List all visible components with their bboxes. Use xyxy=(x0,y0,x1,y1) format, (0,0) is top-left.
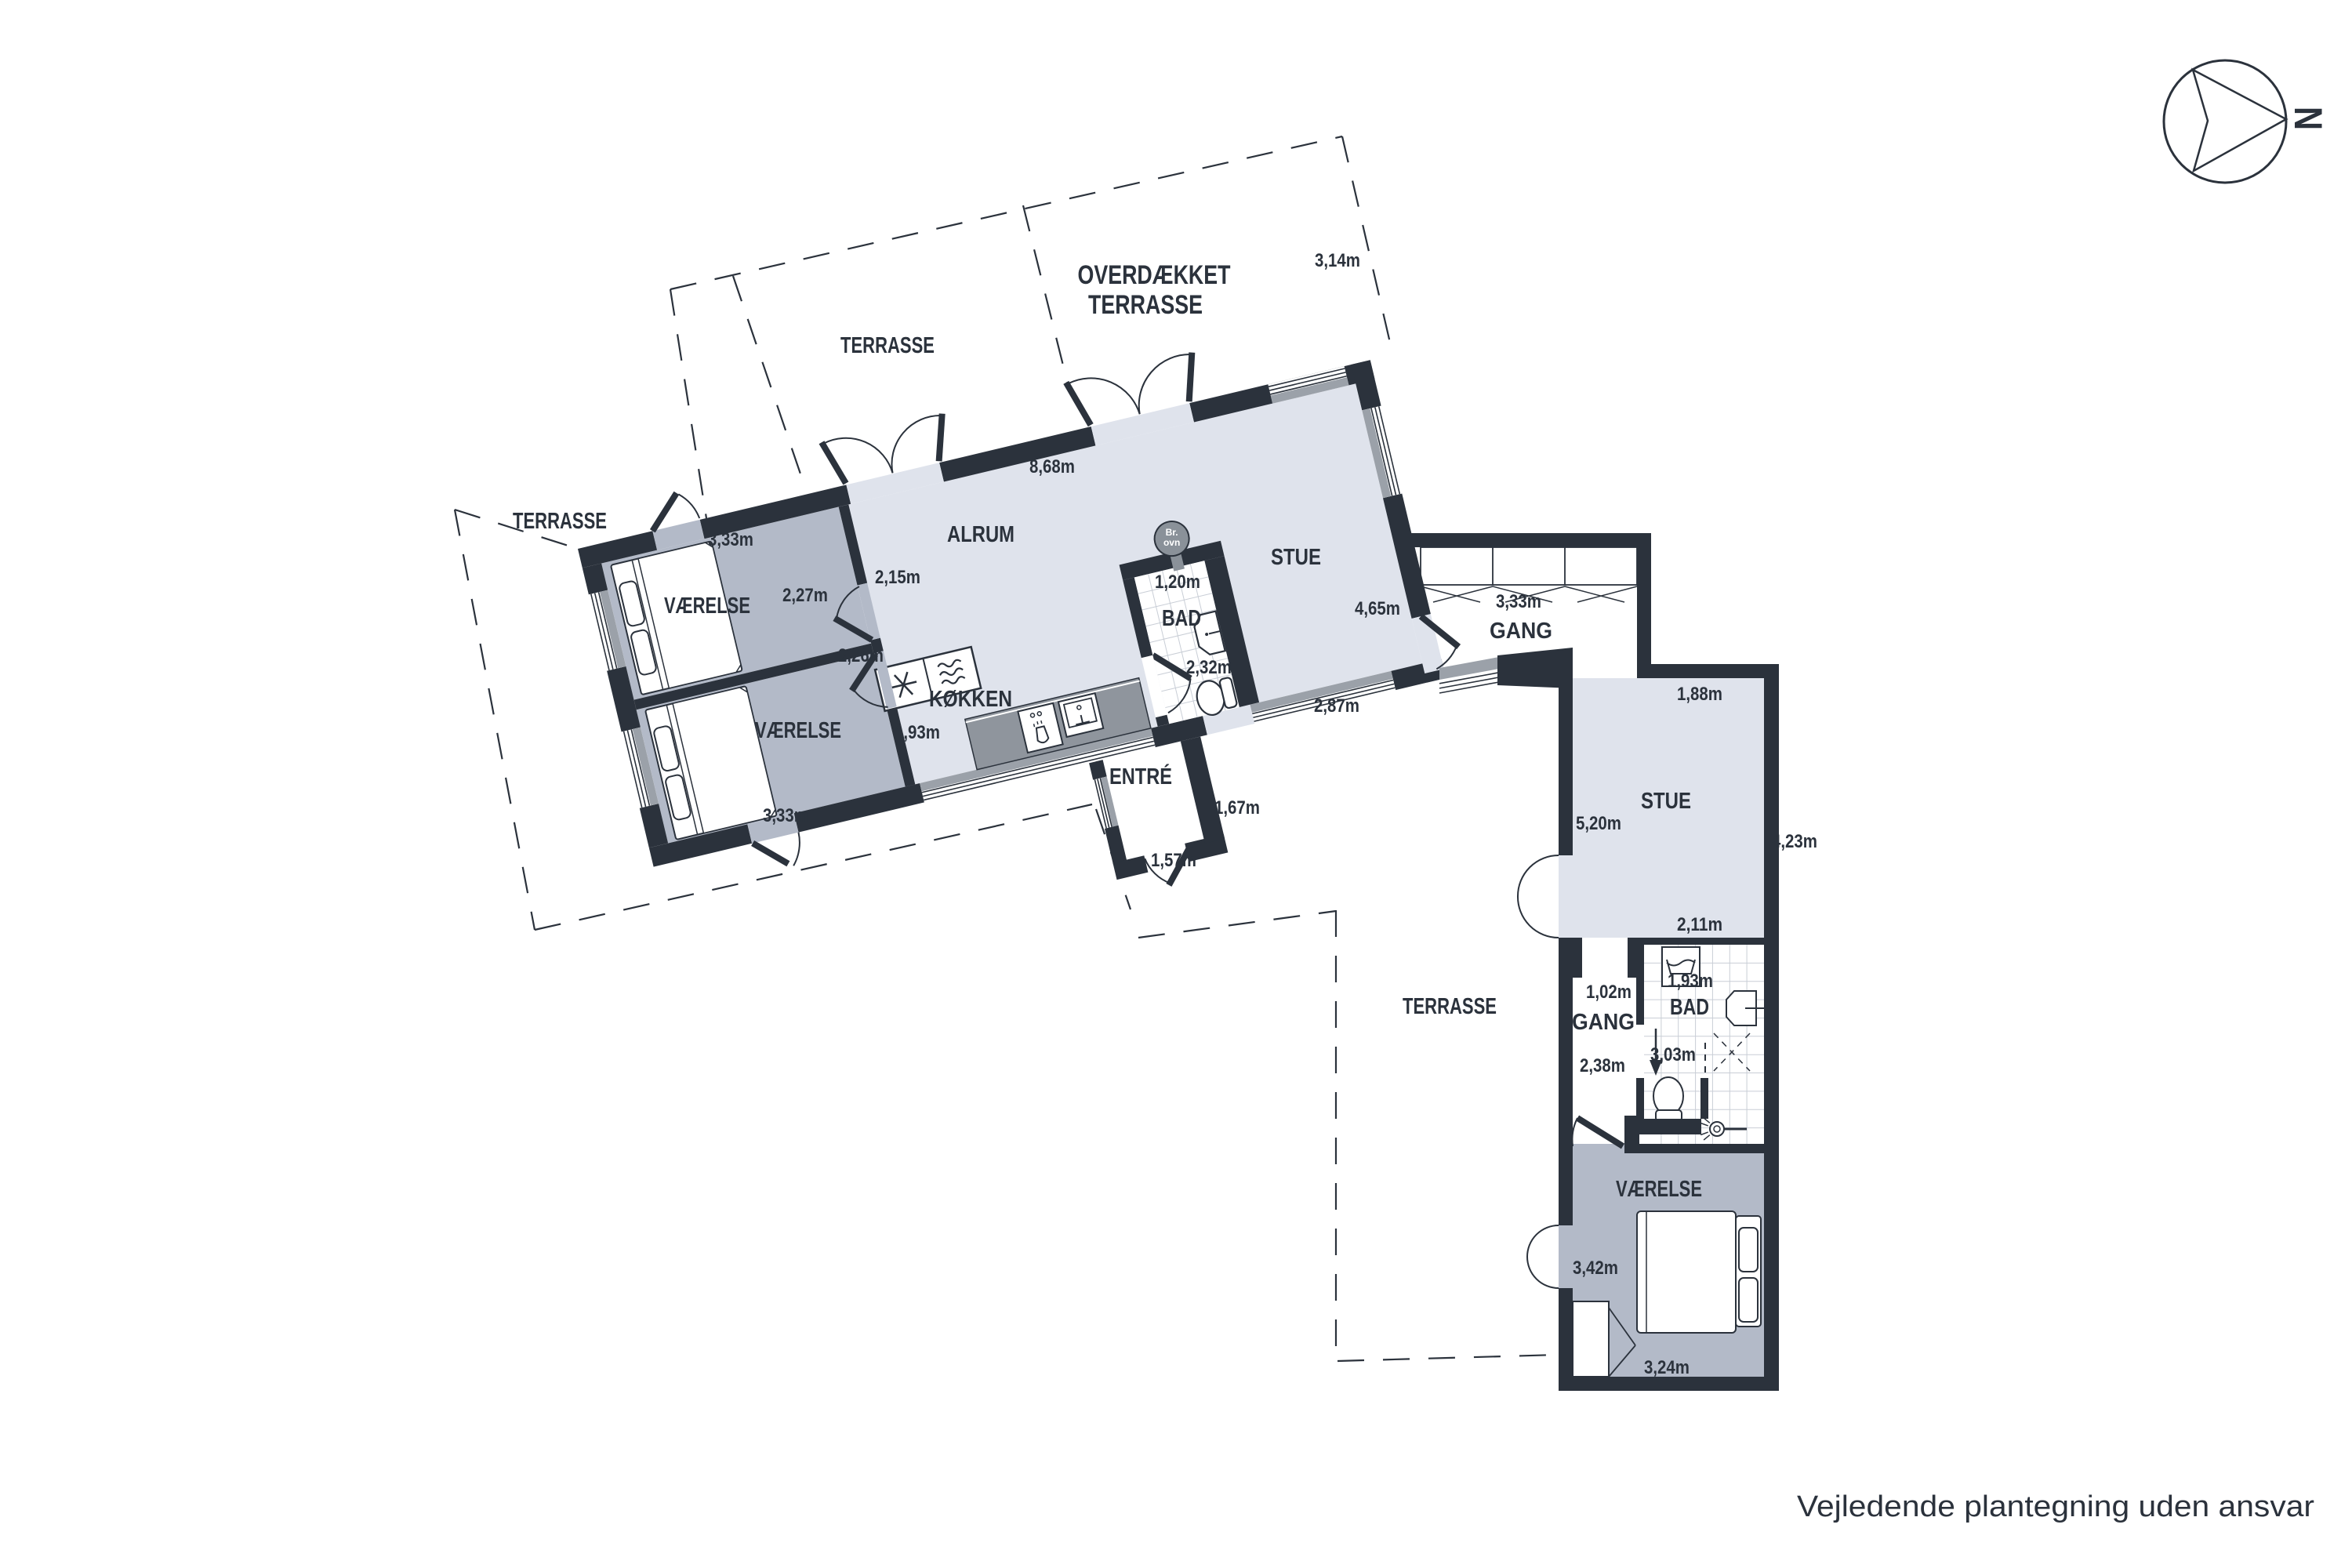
svg-text:4,65m: 4,65m xyxy=(1355,598,1400,619)
svg-text:Br.: Br. xyxy=(1166,527,1178,538)
svg-text:ovn: ovn xyxy=(1163,537,1180,548)
svg-text:1,02m: 1,02m xyxy=(1586,982,1632,1003)
svg-text:2,27m: 2,27m xyxy=(782,585,828,606)
svg-text:Vejledende plantegning uden an: Vejledende plantegning uden ansvar xyxy=(1797,1490,2314,1523)
svg-text:2,11m: 2,11m xyxy=(1677,914,1722,935)
svg-text:1,67m: 1,67m xyxy=(1214,797,1260,818)
svg-text:2,87m: 2,87m xyxy=(1314,695,1359,717)
svg-text:N: N xyxy=(2286,107,2330,130)
svg-text:1,20m: 1,20m xyxy=(1155,572,1200,593)
svg-text:1,93m: 1,93m xyxy=(895,722,940,743)
svg-text:3,33m: 3,33m xyxy=(763,805,808,826)
svg-text:BAD: BAD xyxy=(1162,606,1201,631)
svg-text:3,14m: 3,14m xyxy=(1315,250,1360,271)
svg-text:3,33m: 3,33m xyxy=(708,529,753,550)
svg-text:3,03m: 3,03m xyxy=(1650,1044,1696,1065)
svg-text:3,33m: 3,33m xyxy=(1496,591,1541,612)
svg-text:ALRUM: ALRUM xyxy=(947,522,1014,547)
svg-text:2,32m: 2,32m xyxy=(1186,657,1232,678)
svg-text:VÆRELSE: VÆRELSE xyxy=(664,593,750,619)
svg-text:GANG: GANG xyxy=(1490,619,1552,644)
svg-text:TERRASSE: TERRASSE xyxy=(1088,290,1203,320)
svg-text:2,38m: 2,38m xyxy=(1580,1055,1625,1076)
svg-text:1,88m: 1,88m xyxy=(1677,684,1722,705)
svg-text:TERRASSE: TERRASSE xyxy=(513,509,607,534)
svg-text:VÆRELSE: VÆRELSE xyxy=(1616,1177,1702,1202)
svg-text:3,42m: 3,42m xyxy=(1573,1258,1618,1279)
svg-text:TERRASSE: TERRASSE xyxy=(1403,994,1497,1019)
svg-text:2,15m: 2,15m xyxy=(875,567,920,588)
svg-text:2,26m: 2,26m xyxy=(838,645,884,666)
svg-text:BAD: BAD xyxy=(1670,995,1709,1020)
svg-text:8,68m: 8,68m xyxy=(1029,456,1075,477)
svg-text:OVERDÆKKET: OVERDÆKKET xyxy=(1078,260,1231,290)
svg-text:5,20m: 5,20m xyxy=(1576,813,1621,834)
svg-text:GANG: GANG xyxy=(1572,1010,1635,1035)
svg-text:STUE: STUE xyxy=(1271,545,1321,570)
svg-text:4,23m: 4,23m xyxy=(1772,831,1817,852)
svg-text:3,24m: 3,24m xyxy=(1644,1357,1690,1378)
svg-text:STUE: STUE xyxy=(1641,789,1691,814)
svg-text:VÆRELSE: VÆRELSE xyxy=(755,718,841,743)
svg-text:TERRASSE: TERRASSE xyxy=(840,333,935,358)
svg-text:1,93m: 1,93m xyxy=(1668,971,1713,992)
svg-text:1,57m: 1,57m xyxy=(1151,850,1196,871)
svg-text:ENTRÉ: ENTRÉ xyxy=(1109,763,1172,789)
svg-text:KØKKEN: KØKKEN xyxy=(929,687,1012,712)
